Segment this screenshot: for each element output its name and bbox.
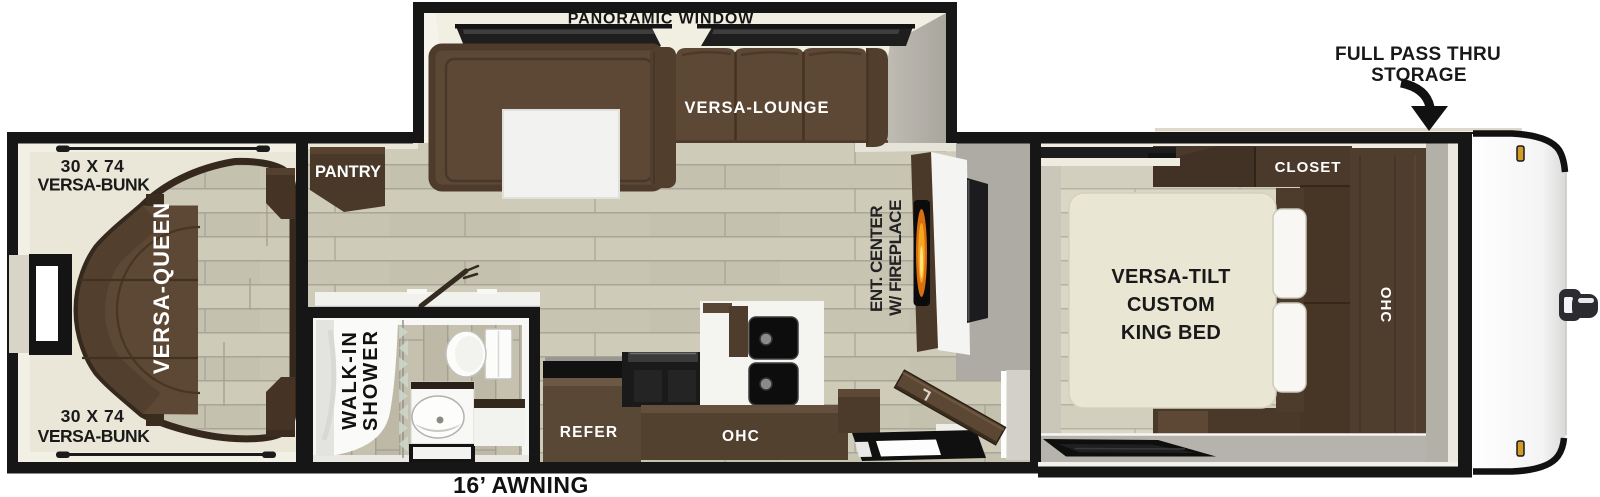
svg-text:OHC: OHC: [722, 428, 760, 445]
svg-text:CLOSET: CLOSET: [1275, 159, 1342, 176]
svg-text:OHC: OHC: [1377, 287, 1394, 323]
svg-text:30 X 74: 30 X 74: [61, 156, 125, 176]
svg-text:CUSTOM: CUSTOM: [1127, 294, 1215, 316]
svg-text:VERSA-BUNK: VERSA-BUNK: [38, 175, 151, 195]
svg-text:16’ AWNING: 16’ AWNING: [453, 472, 589, 497]
svg-text:VERSA-LOUNGE: VERSA-LOUNGE: [685, 99, 830, 117]
svg-text:VERSA-BUNK: VERSA-BUNK: [38, 426, 151, 446]
svg-text:VERSA-TILT: VERSA-TILT: [1111, 266, 1230, 288]
svg-text:ENT. CENTER: ENT. CENTER: [867, 206, 886, 312]
svg-text:FULL PASS THRU: FULL PASS THRU: [1335, 44, 1501, 65]
svg-text:STORAGE: STORAGE: [1371, 65, 1467, 86]
svg-text:KING BED: KING BED: [1121, 322, 1221, 344]
svg-text:REFER: REFER: [560, 424, 619, 441]
svg-text:W/ FIREPLACE: W/ FIREPLACE: [886, 200, 905, 316]
svg-text:PANTRY: PANTRY: [315, 163, 381, 181]
svg-text:30 X 74: 30 X 74: [61, 406, 125, 426]
svg-text:WALK-IN: WALK-IN: [339, 330, 361, 430]
svg-text:SHOWER: SHOWER: [360, 329, 382, 431]
svg-text:VERSA-QUEEN: VERSA-QUEEN: [149, 202, 174, 374]
